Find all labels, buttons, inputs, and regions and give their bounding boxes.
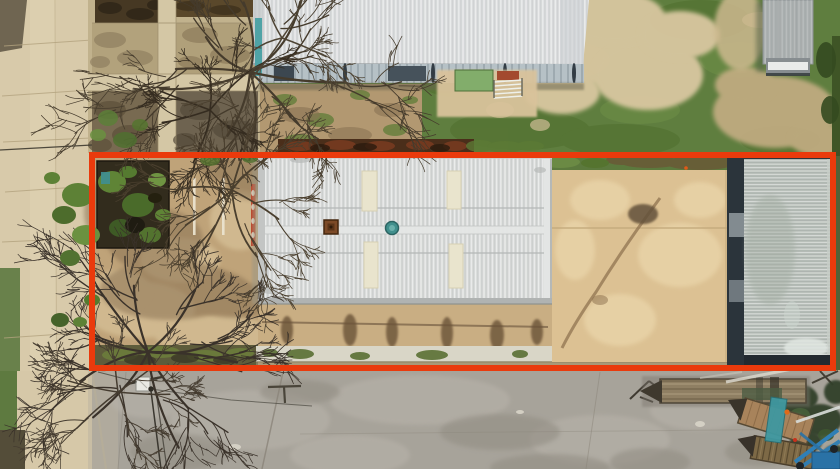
aerial-photo (0, 0, 840, 469)
top-building-posts-blob (572, 63, 576, 83)
skylight-ne (447, 171, 461, 209)
pavement-sq-ml-mottle-blob (94, 32, 126, 48)
apron-stain-small (592, 295, 608, 305)
right-building-bottom (744, 355, 836, 366)
parked-trailer-cab-band (768, 62, 808, 70)
blue-lift-body (812, 452, 840, 469)
planter-bed-a-mottle-blob (126, 8, 154, 20)
tree-foliage-clumps-blob (113, 132, 137, 148)
oil-streaks-blob (281, 316, 293, 344)
oil-streaks-blob (343, 314, 357, 346)
top-building-posts-blob (431, 63, 435, 83)
oil-streaks-blob (531, 319, 543, 345)
roof-vent-teal-inner (389, 225, 395, 231)
top-building-roof-shade-r (560, 0, 584, 65)
patio-table (455, 70, 493, 91)
top-building-dark-bay (388, 66, 426, 81)
warehouse-ridge (258, 226, 552, 234)
hedge-green-end-blob (516, 141, 544, 151)
pole-shadow-west-seg (284, 387, 285, 403)
apron-light-mottle-blob (674, 182, 726, 218)
sandy-patch-blob (640, 11, 720, 59)
treeline-right-blobs-blob (816, 42, 836, 78)
lot-shadow-mottle-blob (100, 260, 240, 320)
roadside-foliage-blob (72, 225, 100, 245)
yard-white-marks-blob (516, 410, 524, 414)
skylight-nw (362, 171, 377, 211)
skylight-se (449, 244, 463, 288)
right-building-tinge (745, 195, 795, 305)
apron-light-mottle-blob (638, 223, 722, 287)
apron-light-mottle-blob (570, 180, 630, 220)
oil-streaks-blob (441, 317, 453, 349)
skylight-sw (364, 242, 378, 288)
apron-grass-green-blob (581, 158, 609, 168)
planter-canopy-blob (148, 173, 166, 187)
pavement-sq-ml-mottle-blob (117, 50, 153, 66)
road-grass-edge (0, 268, 20, 374)
survey-flag-dot (684, 166, 688, 170)
roadside-foliage-blob (44, 172, 60, 184)
yard-dark-mottle-blob (260, 380, 340, 404)
planter-bed-b-mottle-blob (209, 5, 241, 15)
planter-teal-object (101, 172, 110, 184)
roof-subtle-marks-blob (534, 167, 546, 173)
tree-foliage-clumps-blob (132, 119, 148, 131)
roadside-foliage-blob (51, 313, 69, 327)
mulch-hedge-dark-blob (353, 143, 377, 151)
walkway-weeds-blob (350, 352, 370, 360)
pavement-sq-ml-mottle-blob (90, 56, 110, 68)
yard-road-green (0, 371, 17, 433)
top-building-roof-ribs (253, 0, 589, 65)
oil-streaks-blob (386, 317, 398, 347)
yard-white-marks-blob (695, 421, 705, 427)
mulch-hedge-dark-blob (430, 144, 450, 152)
parked-trailer-ribs (763, 0, 813, 64)
yard-road-soil (0, 430, 25, 469)
sandy-flecks-blob (530, 119, 550, 131)
grass-dark-texture-blob (560, 124, 680, 156)
apron-light-mottle-blob (555, 220, 595, 280)
red-marker-dot (793, 438, 797, 442)
tree-foliage-clumps-blob (90, 129, 106, 141)
parked-trailer-cab-dark (766, 73, 810, 76)
aerial-photo-canvas (0, 0, 840, 469)
walkway-weeds-blob (512, 350, 528, 358)
roadside-foliage-blob (73, 317, 87, 327)
treeline-right-blobs-blob (821, 96, 839, 124)
roadside-foliage-blob (60, 250, 80, 266)
oil-streaks-blob (490, 320, 504, 350)
patio-red-item (497, 71, 519, 80)
apron-stain (628, 204, 658, 224)
roadside-foliage-blob (52, 206, 76, 224)
right-building-notch-b (729, 280, 744, 302)
blue-lift-wheels-blob (830, 445, 838, 453)
tree-foliage-clumps-blob (98, 110, 118, 126)
planter-bed-a-mottle-blob (98, 2, 122, 14)
planter-canopy-blob (148, 193, 162, 203)
warehouse-eave-south (258, 298, 552, 304)
roof-vent-brown-dot (330, 226, 333, 229)
orange-marker-dot (784, 409, 789, 414)
right-building-stain-b (784, 301, 800, 329)
walkway-weeds-blob (416, 350, 448, 360)
right-building-notch-a (729, 213, 744, 237)
yard-road-transition (88, 371, 118, 469)
pole-shadow-west-seg (268, 386, 301, 387)
roof-subtle-marks-blob (262, 286, 278, 294)
